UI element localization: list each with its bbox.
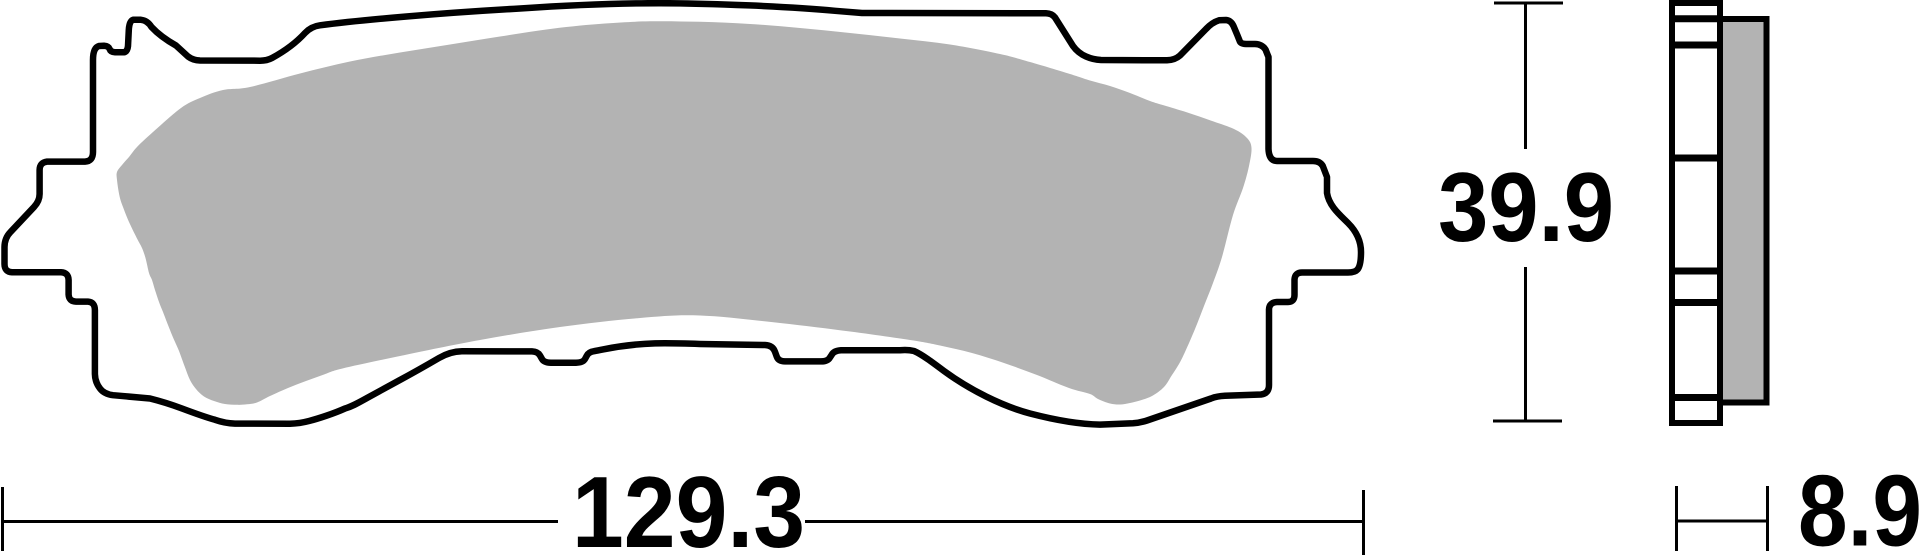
svg-text:129.3: 129.3	[572, 457, 805, 555]
svg-text:39.9: 39.9	[1438, 152, 1614, 262]
svg-text:8.9: 8.9	[1798, 456, 1920, 555]
